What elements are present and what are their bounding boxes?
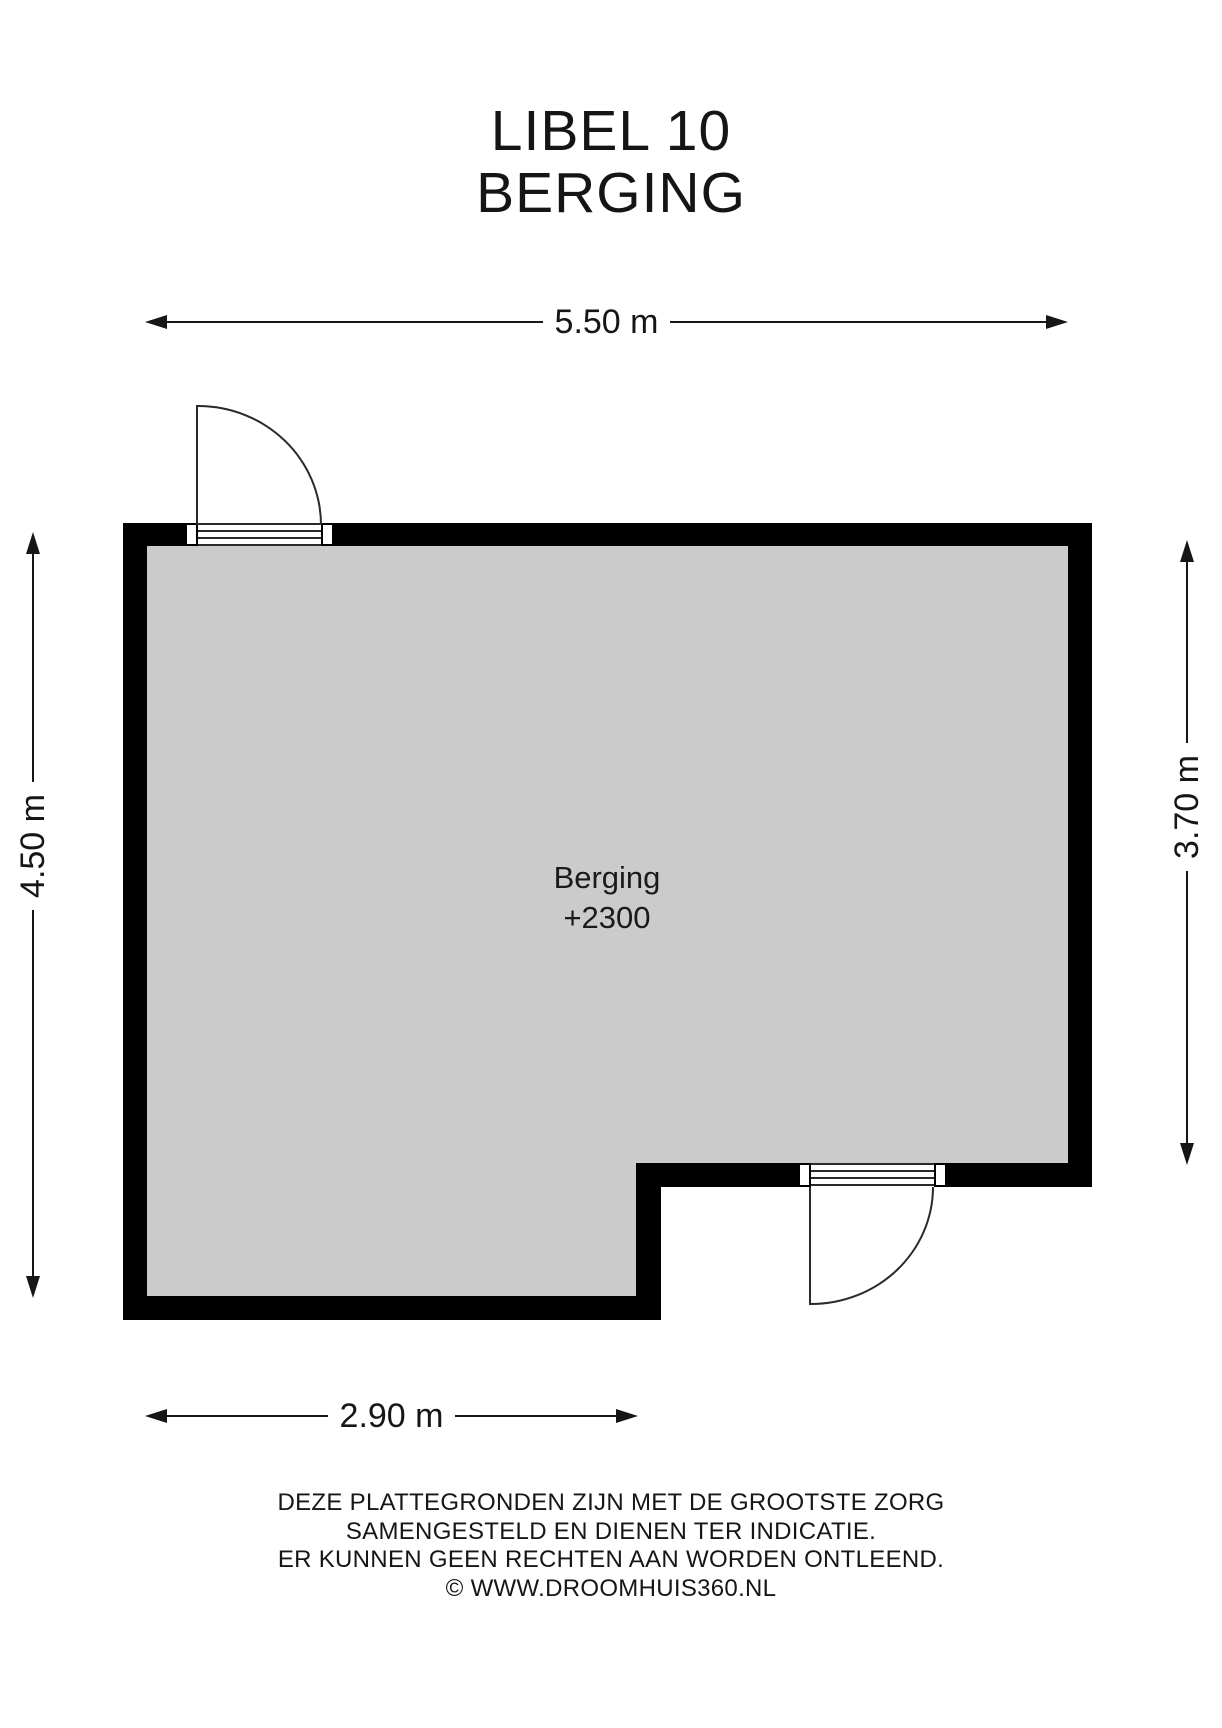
wall-notch-left-segment [636,1163,798,1187]
wall-top-main-segment [334,523,1092,546]
footer-line: DEZE PLATTEGRONDEN ZIJN MET DE GROOTSTE … [0,1489,1222,1518]
footer-disclaimer: DEZE PLATTEGRONDEN ZIJN MET DE GROOTSTE … [0,1489,1222,1603]
dimension-line [167,1415,328,1417]
dimension-top: 5.50 m [145,310,1068,334]
door-swing-arc-top [198,405,322,525]
room-label: Berging +2300 [402,858,812,938]
dimension-line [455,1415,616,1417]
dimension-line [167,321,543,323]
arrow-right-icon [616,1409,638,1423]
door-threshold-bottom [811,1163,934,1187]
floorplan-page: LIBEL 10 BERGING 5.50 m 4.50 m 3.70 m 2.… [0,0,1222,1728]
wall-left [123,523,147,1320]
dimension-left-label: 4.50 m [16,794,50,898]
door-threshold-top [198,523,321,546]
title-line-2: BERGING [0,162,1222,224]
dimension-line [32,910,34,1276]
dimension-bottom: 2.90 m [145,1404,638,1428]
room-name: Berging [402,858,812,898]
footer-line: SAMENGESTELD EN DIENEN TER INDICATIE. [0,1518,1222,1547]
dimension-right-label: 3.70 m [1170,755,1204,859]
footer-line: ER KUNNEN GEEN RECHTEN AAN WORDEN ONTLEE… [0,1546,1222,1575]
arrow-up-icon [26,532,40,554]
wall-right [1068,523,1092,1187]
arrow-right-icon [1046,315,1068,329]
door-jamb [934,1163,947,1187]
dimension-left: 4.50 m [20,532,46,1298]
dimension-line [1186,562,1188,743]
dimension-right: 3.70 m [1174,540,1200,1165]
arrow-down-icon [26,1276,40,1298]
footer-line: © WWW.DROOMHUIS360.NL [0,1575,1222,1604]
wall-bottom [123,1296,661,1320]
dimension-line [1186,871,1188,1143]
room-floor-lower [147,1163,636,1296]
arrow-left-icon [145,315,167,329]
room-elevation: +2300 [402,898,812,938]
door-jamb [185,523,198,546]
arrow-up-icon [1180,540,1194,562]
dimension-line [32,554,34,782]
dimension-line [670,321,1046,323]
title-line-1: LIBEL 10 [0,100,1222,162]
door-jamb [798,1163,811,1187]
page-title: LIBEL 10 BERGING [0,100,1222,224]
door-swing-arc-bottom [811,1187,934,1305]
dimension-bottom-label: 2.90 m [340,1399,444,1433]
room-floor-upper [147,546,1068,1163]
dimension-top-label: 5.50 m [555,305,659,339]
arrow-left-icon [145,1409,167,1423]
door-jamb [321,523,334,546]
arrow-down-icon [1180,1143,1194,1165]
